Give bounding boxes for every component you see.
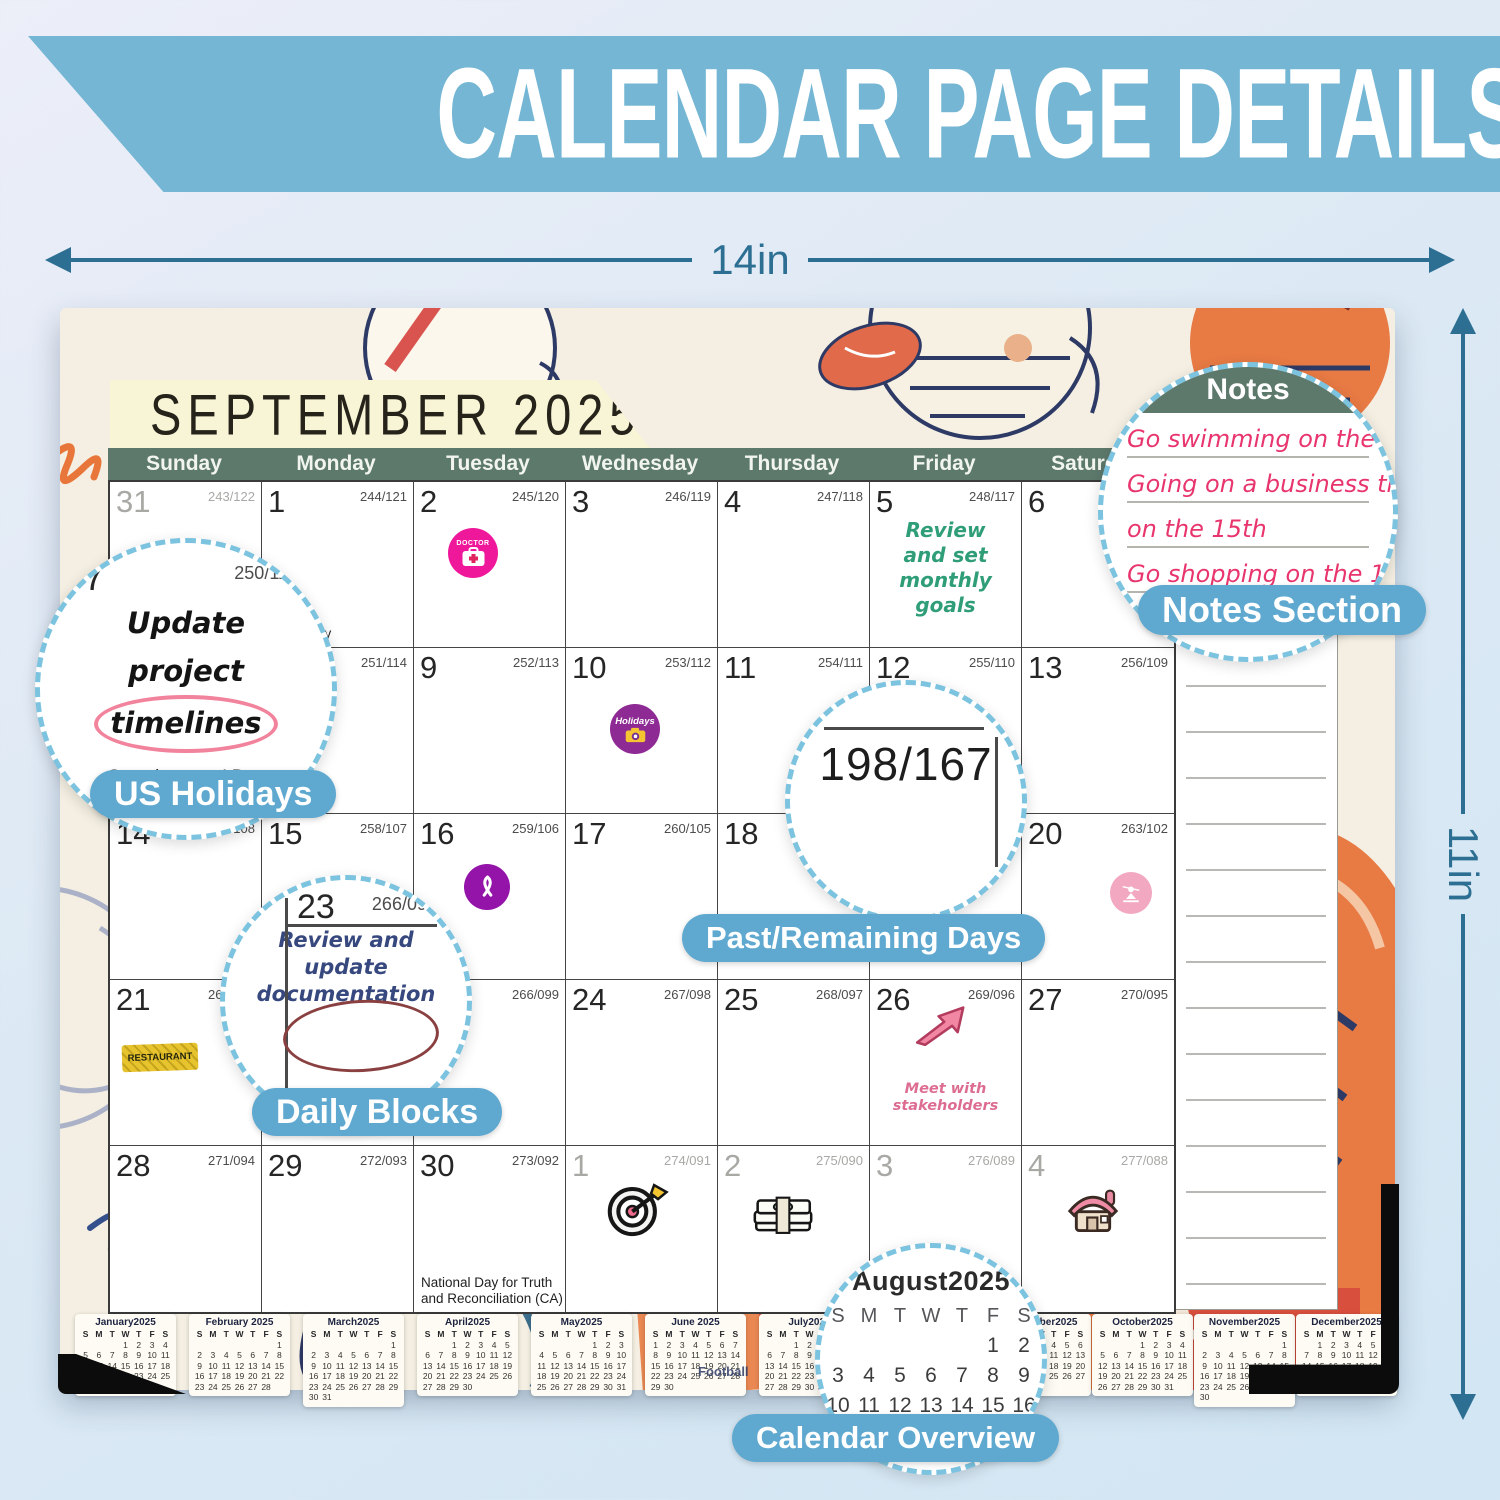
day-cell: 277/0884: [1022, 1146, 1174, 1312]
ribbon-sticker: [464, 864, 510, 910]
page-title: CALENDAR PAGE DETAILS: [436, 40, 1500, 187]
day-cell: 245/1202DOCTOR: [414, 482, 566, 648]
width-label: 14in: [710, 236, 789, 284]
callout-notes-section: Notes Section: [1138, 585, 1426, 635]
day-number: 21: [116, 982, 150, 1017]
house-icon: [1064, 1186, 1122, 1236]
sticker-label: RESTAURANT: [127, 1051, 192, 1064]
orange-scribble: [60, 447, 98, 481]
arrow-up-icon: [1450, 308, 1476, 334]
day-number: 11: [724, 650, 756, 685]
mini-calendar-title: December2025: [1300, 1317, 1393, 1328]
day-count: 255/110: [969, 655, 1015, 670]
day-count: 258/107: [360, 821, 407, 836]
mini-calendar: October2025SMTWTFS1234567891011121314151…: [1092, 1314, 1193, 1396]
dart-sticker: [604, 1182, 670, 1238]
day-count: 273/092: [512, 1153, 559, 1168]
day-cell: 267/09824: [566, 980, 718, 1146]
day-number: 1: [268, 484, 285, 519]
weekday-thursday: Thursday: [716, 448, 868, 480]
day-number: 20: [1028, 816, 1062, 851]
mini-calendar-title: November2025: [1198, 1317, 1291, 1328]
day-count: 276/089: [968, 1153, 1015, 1168]
awareness-ribbon-icon: [478, 875, 497, 900]
arrow-up-right-icon: [914, 1004, 968, 1046]
day-count: 275/090: [816, 1153, 863, 1168]
day-count: 247/118: [817, 489, 863, 504]
day-cell: 253/11210Holidays: [566, 648, 718, 814]
month-title: SEPTEMBER 2025: [150, 380, 642, 447]
day-cell: 246/1193: [566, 482, 718, 648]
day-number: 17: [572, 816, 606, 851]
day-number: 3: [572, 484, 589, 519]
day-count: 266/099: [512, 987, 559, 1002]
day-count: 244/121: [360, 489, 407, 504]
mini-calendar-title: April2025: [421, 1317, 514, 1328]
weekday-monday: Monday: [260, 448, 412, 480]
day-number: 4: [1028, 1148, 1045, 1183]
handwritten-note-line: Go swimming on the 3rd: [1127, 413, 1369, 458]
day-number: 15: [268, 816, 302, 851]
day-number: 3: [876, 1148, 893, 1183]
day-count: 251/114: [361, 655, 407, 670]
day-cell: 247/1184: [718, 482, 870, 648]
day-number: 18: [724, 816, 758, 851]
mini-calendar-title: January2025: [79, 1317, 172, 1328]
arrow-down-icon: [1450, 1394, 1476, 1420]
sticker-label: Holidays: [615, 716, 655, 727]
first-aid-kit-icon: [461, 547, 486, 567]
mini-calendar-title: March2025: [307, 1317, 400, 1328]
day-count: 243/122: [208, 489, 255, 504]
day-cell: 256/10913: [1022, 648, 1174, 814]
day-count: 256/109: [1121, 655, 1168, 670]
mini-calendar: May2025SMTWTFS12345678910111213141516171…: [531, 1314, 632, 1396]
day-count: 259/106: [512, 821, 559, 836]
weekday-wednesday: Wednesday: [564, 448, 716, 480]
handwritten-note: project: [40, 647, 332, 695]
day-count: 271/094: [208, 1153, 255, 1168]
day-number: 2: [420, 484, 437, 519]
mini-calendar: February 2025SMTWTFS12345678910111213141…: [189, 1314, 290, 1396]
weekday-tuesday: Tuesday: [412, 448, 564, 480]
house-sticker: [1064, 1186, 1122, 1236]
day-count: 252/113: [513, 655, 559, 670]
day-number: 2: [724, 1148, 741, 1183]
day-number: 5: [876, 484, 893, 519]
callout-daily-blocks: Daily Blocks: [252, 1088, 502, 1136]
mini-calendar: March2025SMTWTFS123456789101112131415161…: [303, 1314, 404, 1407]
restaurant-sticker: RESTAURANT: [122, 1043, 199, 1073]
product-showcase: CALENDAR PAGE DETAILS 14in 11in: [0, 0, 1500, 1500]
holidays-sticker: Holidays: [610, 704, 660, 754]
day-count: 245/120: [512, 489, 559, 504]
day-cell: 263/10220: [1022, 814, 1174, 980]
day-cell: 274/0911: [566, 1146, 718, 1312]
arrow-sticker: [914, 1004, 968, 1046]
arrow-left-icon: [45, 247, 71, 273]
mini-calendar-title: May2025: [535, 1317, 628, 1328]
arrow-right-icon: [1429, 247, 1455, 273]
circled-word: timelines: [94, 695, 277, 753]
magnified-day-number: 23: [297, 888, 335, 927]
day-number: 10: [572, 650, 606, 685]
day-count: 274/091: [664, 1153, 711, 1168]
calendar-page: SEPTEMBER 2025 SundayMondayTuesdayWednes…: [60, 308, 1395, 1390]
yoga-sticker: [1110, 872, 1152, 914]
money-stack-icon: [752, 1196, 814, 1236]
football-caption: Football: [698, 1364, 749, 1379]
height-dimension: 11in: [1440, 308, 1486, 1420]
holiday-label: National Day for Truth and Reconciliatio…: [421, 1275, 563, 1307]
day-count: 246/119: [665, 489, 711, 504]
day-cell: 270/09527: [1022, 980, 1174, 1146]
day-cell: 272/09329: [262, 1146, 414, 1312]
weekday-sunday: Sunday: [108, 448, 260, 480]
width-dimension: 14in: [45, 240, 1455, 280]
day-count: 248/117: [969, 489, 1015, 504]
day-count: 253/112: [665, 655, 711, 670]
day-cell: 268/09725: [718, 980, 870, 1146]
title-banner: CALENDAR PAGE DETAILS: [28, 36, 1500, 192]
day-number: 1: [572, 1148, 589, 1183]
day-cell: 269/09626Meet withstakeholders: [870, 980, 1022, 1146]
handwritten-note: Review and: [225, 927, 467, 954]
callout-calendar-overview: Calendar Overview: [732, 1414, 1059, 1462]
mini-calendar: June 2025SMTWTFS123456789101112131415161…: [645, 1314, 746, 1396]
handwritten-note: Meet withstakeholders: [870, 1081, 1021, 1115]
day-number: 25: [724, 982, 758, 1017]
day-number: 16: [420, 816, 454, 851]
mini-calendar: April2025SMTWTFS123456789101112131415161…: [417, 1314, 518, 1396]
height-label: 11in: [1439, 826, 1487, 902]
mini-calendar-title: October2025: [1096, 1317, 1189, 1328]
sticker-label: DOCTOR: [456, 540, 489, 547]
day-number: 28: [116, 1148, 150, 1183]
day-number: 24: [572, 982, 606, 1017]
day-count: 263/102: [1121, 821, 1168, 836]
doctor-sticker: DOCTOR: [448, 528, 498, 578]
day-number: 13: [1028, 650, 1062, 685]
day-count: 277/088: [1121, 1153, 1168, 1168]
dartboard-icon: [604, 1182, 670, 1238]
handwritten-note: Update: [40, 599, 332, 647]
day-number: 26: [876, 982, 910, 1017]
day-cell: 273/09230National Day for Truth and Reco…: [414, 1146, 566, 1312]
mini-calendar-title: June 2025: [649, 1317, 742, 1328]
handwritten-note-line: Going on a business trip: [1127, 458, 1369, 503]
month-banner: SEPTEMBER 2025: [110, 380, 650, 448]
day-count: 254/111: [818, 655, 863, 670]
past-remaining-value: 198/167: [790, 737, 1022, 791]
weekday-friday: Friday: [868, 448, 1020, 480]
day-number: 29: [268, 1148, 302, 1183]
day-cell: 248/1175Reviewand setmonthlygoals: [870, 482, 1022, 648]
camera-icon: [624, 727, 647, 743]
day-count: 268/097: [816, 987, 863, 1002]
handwritten-note: timelines: [40, 695, 332, 753]
day-cell: 252/1139: [414, 648, 566, 814]
money-sticker: [752, 1196, 814, 1236]
day-count: 267/098: [664, 987, 711, 1002]
day-cell: 271/09428: [110, 1146, 262, 1312]
callout-us-holidays: US Holidays: [90, 770, 336, 818]
day-count: 272/093: [360, 1153, 407, 1168]
day-number: 9: [420, 650, 437, 685]
day-count: 269/096: [968, 987, 1015, 1002]
mini-calendar-title: February 2025: [193, 1317, 286, 1328]
past-remaining-magnifier: 198/167: [785, 680, 1027, 922]
day-number: 6: [1028, 484, 1045, 519]
day-count: 260/105: [664, 821, 711, 836]
day-count: 270/095: [1121, 987, 1168, 1002]
day-number: 4: [724, 484, 741, 519]
day-number: 27: [1028, 982, 1062, 1017]
handwritten-note: Reviewand setmonthlygoals: [870, 518, 1021, 618]
handwritten-note: update: [225, 954, 467, 981]
handwritten-note-line: on the 15th: [1127, 503, 1369, 548]
day-number: 31: [116, 484, 150, 519]
day-number: 30: [420, 1148, 454, 1183]
meditation-icon: [1120, 883, 1142, 904]
weekday-header-bar: SundayMondayTuesdayWednesdayThursdayFrid…: [108, 448, 1172, 480]
callout-past-remaining-days: Past/Remaining Days: [682, 914, 1045, 962]
